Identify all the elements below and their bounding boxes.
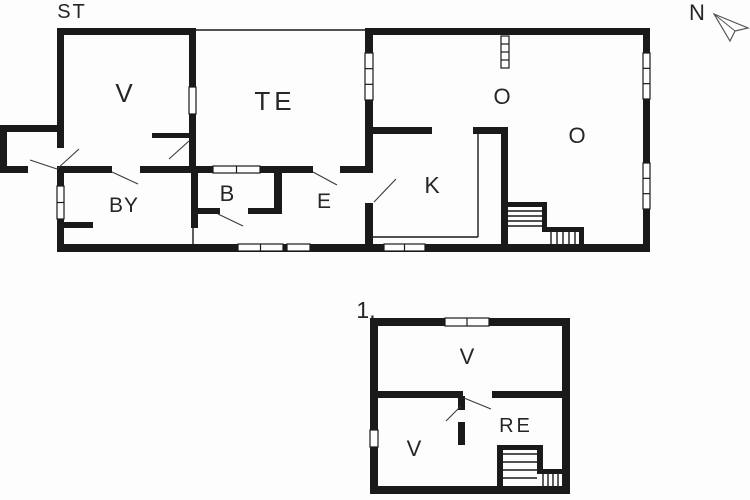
label-room-e: E <box>317 190 331 213</box>
wall-segment <box>57 244 650 252</box>
wall-segment <box>0 166 28 173</box>
wall-segment <box>189 28 196 88</box>
wall-segment <box>189 113 196 173</box>
window <box>365 53 373 100</box>
wall-segment <box>260 166 276 173</box>
wall-segment <box>274 166 282 214</box>
wall-segment <box>340 166 366 173</box>
wall-segment <box>562 318 570 494</box>
label-room-o-right: O <box>568 123 585 148</box>
wall-segment <box>191 166 198 228</box>
label-st: ST <box>57 1 87 23</box>
wall-segment <box>370 318 445 326</box>
window <box>643 163 650 209</box>
wall-segment <box>508 202 547 207</box>
wall-segment <box>198 208 220 214</box>
window <box>370 430 378 447</box>
label-room-v-first-upper: V <box>460 344 475 369</box>
wall-segment <box>497 445 543 450</box>
wall-segment <box>57 166 112 173</box>
label-room-b: B <box>220 181 235 206</box>
label-room-re: RE <box>499 415 533 437</box>
wall-segment <box>57 28 64 148</box>
label-room-by: BY <box>109 194 139 217</box>
wall-segment <box>0 125 7 173</box>
wall-segment <box>537 469 562 474</box>
wall-segment <box>492 391 570 398</box>
label-room-v-ground: V <box>115 78 133 108</box>
wall-segment <box>152 133 189 138</box>
label-room-v-first-lower: V <box>407 436 422 461</box>
wall-segment <box>643 28 650 53</box>
wall-segment <box>370 486 570 494</box>
wall-segment <box>282 166 313 173</box>
label-room-te: TE <box>254 86 295 116</box>
wall-segment <box>373 127 432 134</box>
window <box>189 87 196 114</box>
wall-segment <box>458 422 465 445</box>
north-label: N <box>689 0 705 25</box>
wall-segment <box>579 227 584 245</box>
wall-segment <box>501 127 508 245</box>
wall-segment <box>643 99 650 163</box>
wall-segment <box>643 209 650 252</box>
wall-segment <box>57 28 196 35</box>
wall-segment <box>542 227 584 232</box>
wall-segment <box>497 445 503 486</box>
wall-segment <box>365 28 650 35</box>
wall-segment <box>365 203 373 245</box>
floorplan-drawing: STVTEOOBYBEK1.VVREN <box>0 0 750 500</box>
window <box>643 53 650 99</box>
wall-segment <box>62 222 93 228</box>
wall-segment <box>489 318 570 326</box>
wall-segment <box>365 100 373 173</box>
wall-segment <box>248 208 276 214</box>
wall-segment <box>198 166 213 173</box>
wall-segment <box>370 318 378 430</box>
floorplan-page: STVTEOOBYBEK1.VVREN <box>0 0 750 500</box>
wall-segment <box>5 125 57 132</box>
label-room-k: K <box>424 172 440 198</box>
wall-segment <box>537 445 543 472</box>
wall-segment <box>370 391 463 398</box>
window <box>287 244 310 251</box>
label-room-o-upper: O <box>493 84 510 109</box>
label-floor-1: 1. <box>356 297 375 323</box>
